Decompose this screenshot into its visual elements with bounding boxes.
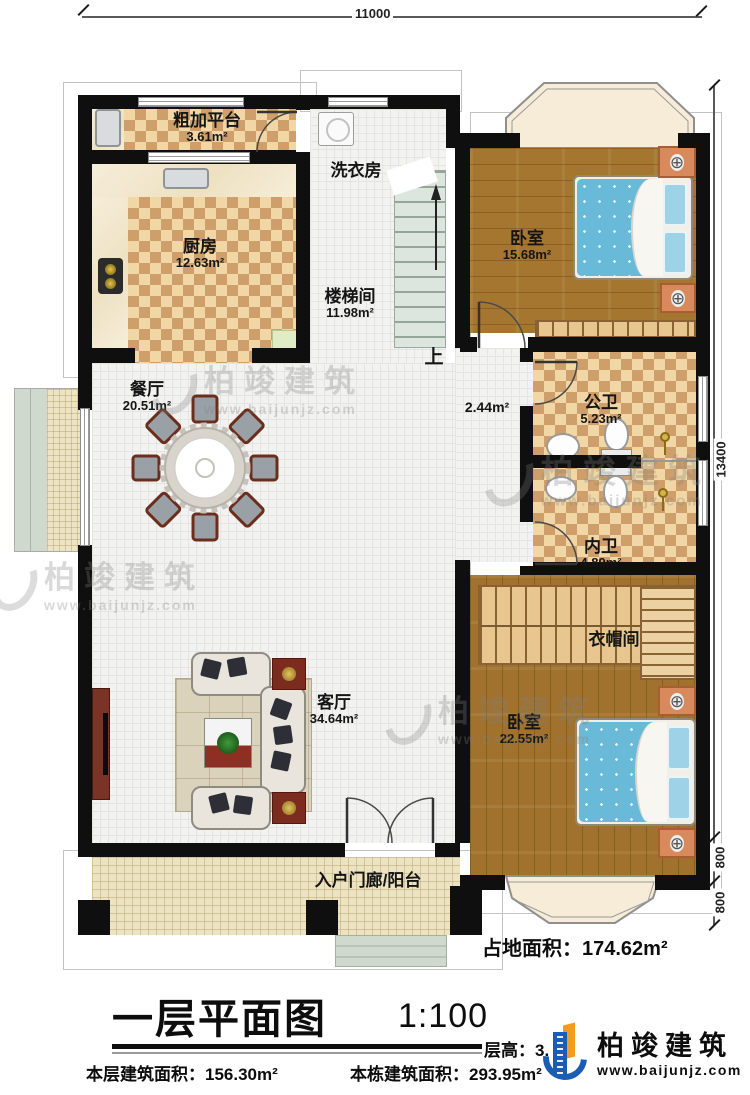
dining-chair [193,514,217,540]
room-label-bedroom1: 卧室15.68m² [503,230,551,261]
floor-porch [92,857,460,935]
room-label-kitchen: 厨房12.63m² [176,238,224,269]
radiator: ⊕ [658,828,696,858]
toilet-bowl [603,475,628,508]
dining-chair [193,396,217,422]
footprint-area-label: 占地面积：174.62m² [482,932,668,961]
pillow [663,183,687,226]
dimension-tick [77,4,89,16]
shower-glass [641,460,696,462]
wall [435,843,460,857]
bay-window-top [498,76,702,150]
room-label-cloakroom: 衣帽间 [589,631,640,649]
wall [533,455,641,468]
floor-height-label: 层高：3. [484,1036,549,1061]
fan-icon: ⊕ [670,693,684,710]
room-label-hallway: 2.44m² [465,400,509,415]
wall [296,95,310,110]
title-underline [112,1044,482,1049]
sheet-scale: 1:100 [398,997,488,1036]
window [80,408,90,546]
pillow [667,726,691,770]
wall [696,133,710,348]
blanket [635,722,667,822]
window [328,97,388,107]
wall [455,133,470,348]
fan-icon: ⊕ [670,835,684,852]
wall [78,843,345,857]
logo-building-blue [553,1032,567,1074]
stair-up-arrow [428,182,444,272]
fan-icon: ⊕ [671,290,685,307]
building-area-label: 本栋建筑面积：293.95m² [350,1060,542,1085]
wardrobe-shelves [640,585,696,680]
wardrobe-hangers [478,585,642,665]
burner [105,264,116,275]
sofa-cushion [273,725,293,745]
brand-name: 柏竣建筑 [597,1024,733,1063]
wall [78,363,92,410]
terrace-steps [14,388,80,552]
watermark-logo-icon [0,547,46,618]
wall [460,337,477,352]
wall [455,560,470,843]
plant [217,732,239,754]
terrace-band [15,389,48,551]
dimension-800-label: 800 [712,889,727,917]
dining-table-set [127,390,283,546]
dimension-right-label: 13400 [714,438,729,480]
sofa-cushion [233,795,253,815]
bed-bedroom2 [575,718,696,826]
window [698,460,708,526]
side-table [272,658,306,690]
wall [78,348,135,363]
room-label-rough-platform: 粗加平台3.61m² [173,112,241,143]
dining-chair [251,456,277,480]
sheet-title: 一层平面图 [112,985,327,1045]
floor-plan: ⊕ ⊕ ⊕ ⊕ [0,0,750,1095]
wall [520,348,533,362]
kitchen-sink [163,168,209,189]
room-label-inner-bath: 内卫4.89m² [580,538,621,569]
fan-icon: ⊕ [670,154,684,171]
brand-logo-icon [541,1022,591,1084]
pass-through-window [148,152,250,163]
wall [296,152,310,363]
wall [655,875,710,890]
brand-site: www.baijunjz.com [597,1062,742,1078]
burner [105,278,116,289]
room-label-bedroom2: 卧室22.55m² [500,714,548,745]
dimension-line-right [713,86,715,926]
dining-chair [133,456,159,480]
wardrobe-rod [480,625,640,627]
floor-area-label: 本层建筑面积：156.30m² [86,1060,278,1085]
bath-sink [545,476,577,501]
room-label-dining: 餐厅20.51m² [123,381,171,412]
pillow [667,776,691,820]
sofa-bottom [191,786,271,830]
blanket [631,179,663,276]
wall [78,95,92,363]
tv [103,713,108,775]
terrace-band-line [30,389,31,551]
stairs-up-label: 上 [424,348,443,368]
pillow [663,231,687,274]
washer-drum [326,118,350,142]
bay-window-bottom [498,870,668,930]
wall [460,133,520,148]
bed-bedroom1 [573,175,693,280]
porch-pillar [450,886,482,935]
window [698,376,708,442]
title-underline-thin [112,1052,482,1054]
porch-steps [335,935,447,967]
wall [252,348,310,363]
floor-kitchen [128,197,296,367]
stove [98,258,123,294]
radiator: ⊕ [660,283,696,313]
shower-stem [664,441,666,455]
room-label-porch: 入户门廊/阳台 [315,872,422,890]
porch-pillar [306,900,338,935]
side-table [272,792,306,824]
room-label-public-bath: 公卫5.23m² [580,394,621,425]
bedroom1-closet [535,320,696,338]
washing-machine [318,112,354,146]
room-label-laundry: 洗衣房 [331,162,382,180]
wall [78,545,92,843]
wall [696,575,710,890]
brand-logo: 柏竣建筑 www.baijunjz.com [541,1018,741,1088]
radiator: ⊕ [658,146,696,178]
wall [520,406,533,522]
sofa-cushion [227,657,248,678]
room-label-stairwell: 楼梯间11.98m² [325,288,376,319]
porch-pillar [78,900,110,935]
terrace-hatch [47,389,80,551]
dimension-top-label: 11000 [352,6,393,21]
prep-sink [95,109,121,147]
coffee-table [204,718,252,768]
radiator: ⊕ [658,686,696,716]
wall [528,337,710,352]
wall [520,566,533,575]
window [138,97,244,107]
sofa-cushion [270,750,291,771]
room-label-living: 客厅34.64m² [310,694,358,725]
tv-cabinet [92,688,110,800]
dimension-800-label: 800 [712,844,727,872]
shower-stem [662,497,664,511]
